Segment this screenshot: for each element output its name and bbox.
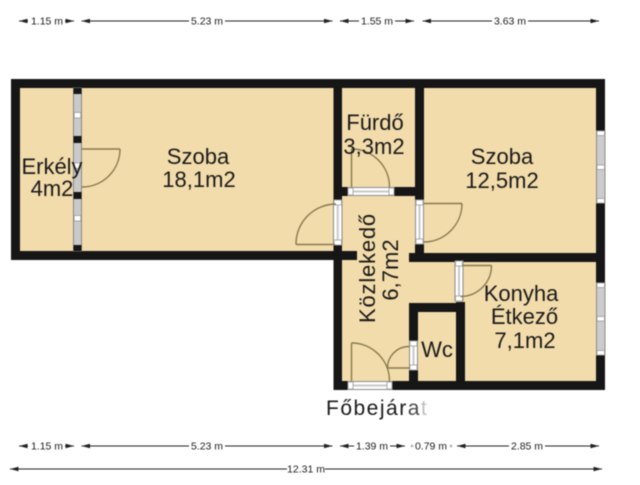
svg-text:Szoba: Szoba [167, 144, 230, 169]
svg-text:3,3m2: 3,3m2 [343, 134, 404, 159]
svg-text:6,7m2: 6,7m2 [378, 239, 403, 300]
svg-text:3.63 m: 3.63 m [494, 16, 526, 28]
svg-text:5.23 m: 5.23 m [191, 16, 223, 28]
svg-text:12.31 m: 12.31 m [287, 464, 325, 476]
svg-text:1.15 m: 1.15 m [31, 16, 63, 28]
svg-text:4m2: 4m2 [31, 176, 74, 201]
svg-text:2.85 m: 2.85 m [511, 441, 543, 453]
svg-text:7,1m2: 7,1m2 [494, 328, 555, 353]
svg-text:Főbejárat: Főbejárat [326, 397, 428, 420]
svg-text:5.23 m: 5.23 m [191, 441, 223, 453]
svg-text:12,5m2: 12,5m2 [465, 168, 538, 193]
svg-text:Konyha: Konyha [484, 281, 559, 306]
svg-text:Wc: Wc [421, 337, 453, 362]
svg-text:Szoba: Szoba [471, 144, 534, 169]
svg-text:1.15 m: 1.15 m [31, 441, 63, 453]
svg-text:Étkező: Étkező [491, 304, 558, 329]
svg-text:18,1m2: 18,1m2 [162, 167, 235, 192]
svg-text:1.39 m: 1.39 m [356, 441, 388, 453]
svg-text:0.79 m: 0.79 m [415, 441, 447, 453]
svg-text:Fürdő: Fürdő [346, 110, 403, 135]
svg-text:Közlekedő: Közlekedő [355, 213, 380, 323]
svg-text:1.55 m: 1.55 m [361, 16, 393, 28]
